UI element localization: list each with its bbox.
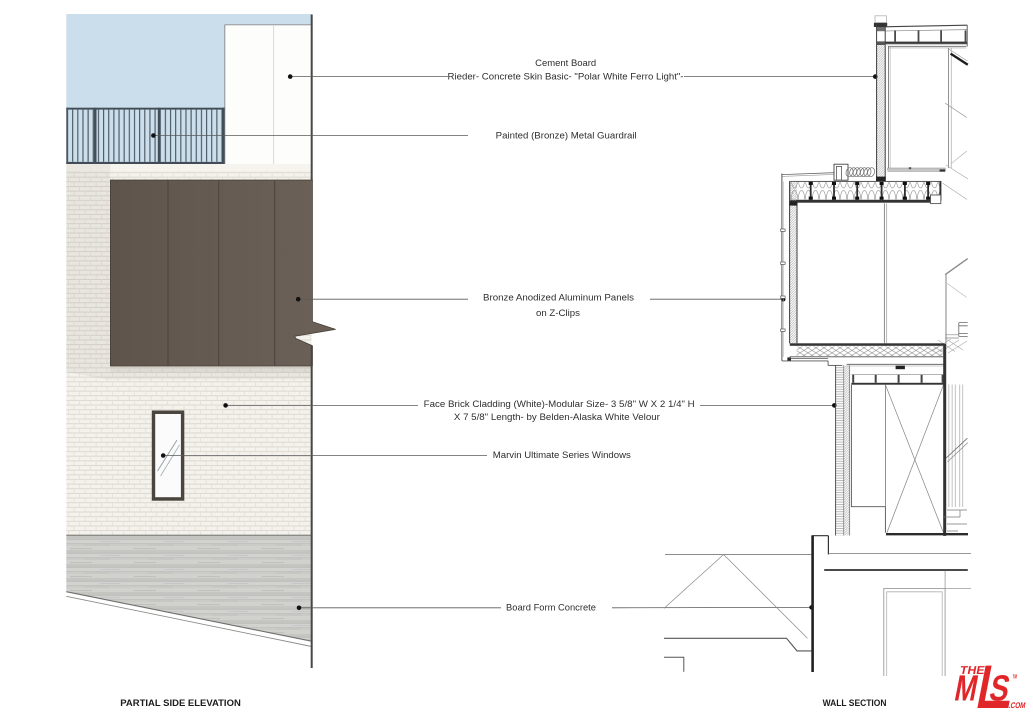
svg-text:on Z-Clips: on Z-Clips — [536, 308, 581, 318]
svg-text:WALL SECTION: WALL SECTION — [823, 698, 887, 708]
svg-text:PARTIAL SIDE ELEVATION: PARTIAL SIDE ELEVATION — [120, 698, 240, 708]
svg-text:Face Brick Cladding (White)-Mo: Face Brick Cladding (White)-Modular Size… — [424, 399, 695, 409]
svg-text:X 7 5/8" Length- by Belden-Ala: X 7 5/8" Length- by Belden-Alaska White … — [454, 412, 660, 422]
svg-text:Painted (Bronze) Metal Guardra: Painted (Bronze) Metal Guardrail — [496, 130, 637, 140]
svg-text:Bronze Anodized Aluminum Panel: Bronze Anodized Aluminum Panels — [483, 292, 635, 302]
svg-text:Rieder- Concrete Skin Basic- ": Rieder- Concrete Skin Basic- "Polar Whit… — [448, 72, 684, 82]
svg-text:Cement Board: Cement Board — [535, 58, 596, 68]
svg-text:Board Form Concrete: Board Form Concrete — [506, 603, 596, 613]
svg-text:.COM: .COM — [1008, 701, 1027, 710]
svg-text:Marvin Ultimate Series Windows: Marvin Ultimate Series Windows — [493, 450, 632, 460]
